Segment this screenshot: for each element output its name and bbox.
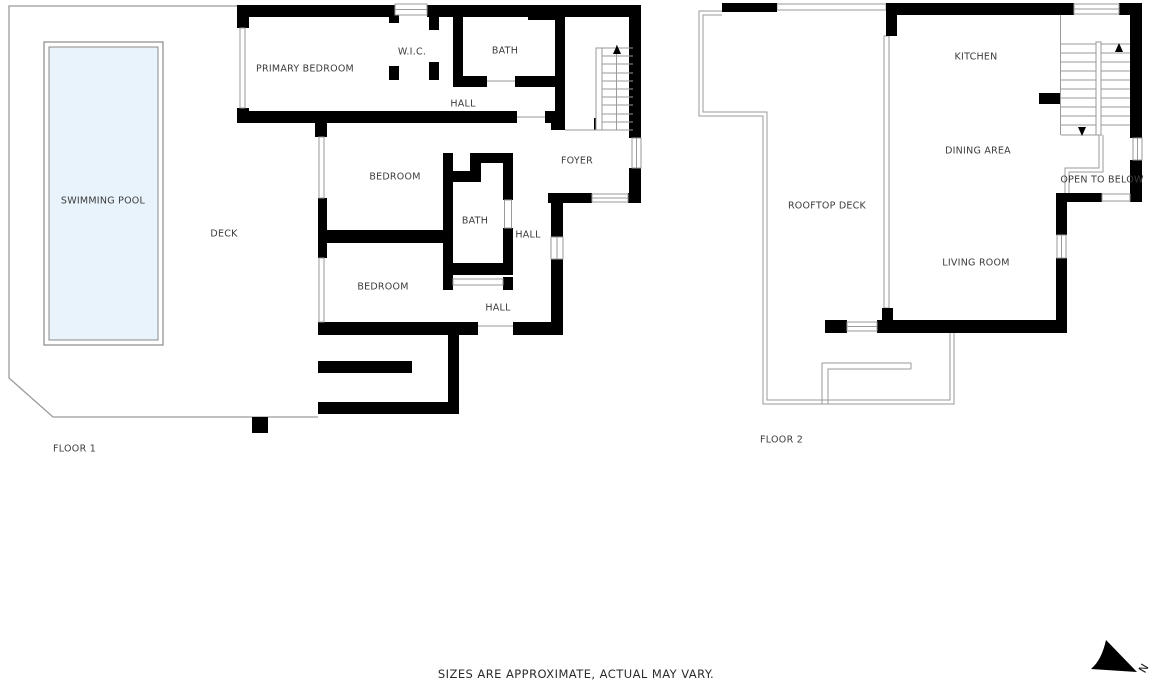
stair-up-arrow-icon bbox=[613, 45, 621, 54]
room-label-hall-upper: HALL bbox=[450, 99, 475, 110]
swimming-pool-shape bbox=[44, 42, 163, 345]
room-label-dining-area: DINING AREA bbox=[945, 146, 1011, 157]
room-label-bedroom-middle: BEDROOM bbox=[369, 172, 420, 183]
floor2-staircase bbox=[1061, 15, 1131, 136]
room-label-bedroom-lower: BEDROOM bbox=[357, 282, 408, 293]
room-label-deck: DECK bbox=[210, 229, 237, 240]
room-label-bath-upper: BATH bbox=[492, 46, 518, 57]
room-label-swimming-pool: SWIMMING POOL bbox=[61, 196, 145, 207]
floor1-title: FLOOR 1 bbox=[53, 444, 96, 455]
room-label-living-room: LIVING ROOM bbox=[942, 258, 1009, 269]
floor1-staircase bbox=[565, 45, 633, 130]
floor2-plan bbox=[699, 3, 1142, 404]
floorplan-drawing bbox=[0, 0, 1152, 688]
north-arrow-icon bbox=[1091, 640, 1137, 672]
room-label-foyer: FOYER bbox=[561, 156, 593, 167]
room-label-hall-middle: HALL bbox=[515, 230, 540, 241]
deck-glass-wall bbox=[884, 36, 889, 308]
room-label-wic: W.I.C. bbox=[398, 47, 426, 58]
floorplan-page: SWIMMING POOL DECK PRIMARY BEDROOM W.I.C… bbox=[0, 0, 1152, 688]
disclaimer-text: SIZES ARE APPROXIMATE, ACTUAL MAY VARY. bbox=[438, 667, 714, 681]
room-label-rooftop-deck: ROOFTOP DECK bbox=[788, 201, 866, 212]
room-label-hall-lower: HALL bbox=[485, 303, 510, 314]
room-label-open-to-below: OPEN TO BELOW bbox=[1060, 175, 1143, 186]
room-label-kitchen: KITCHEN bbox=[955, 52, 998, 63]
room-label-primary-bedroom: PRIMARY BEDROOM bbox=[256, 64, 354, 75]
room-label-bath-middle: BATH bbox=[462, 216, 488, 227]
deck-post bbox=[252, 417, 268, 433]
floor2-title: FLOOR 2 bbox=[760, 435, 803, 446]
